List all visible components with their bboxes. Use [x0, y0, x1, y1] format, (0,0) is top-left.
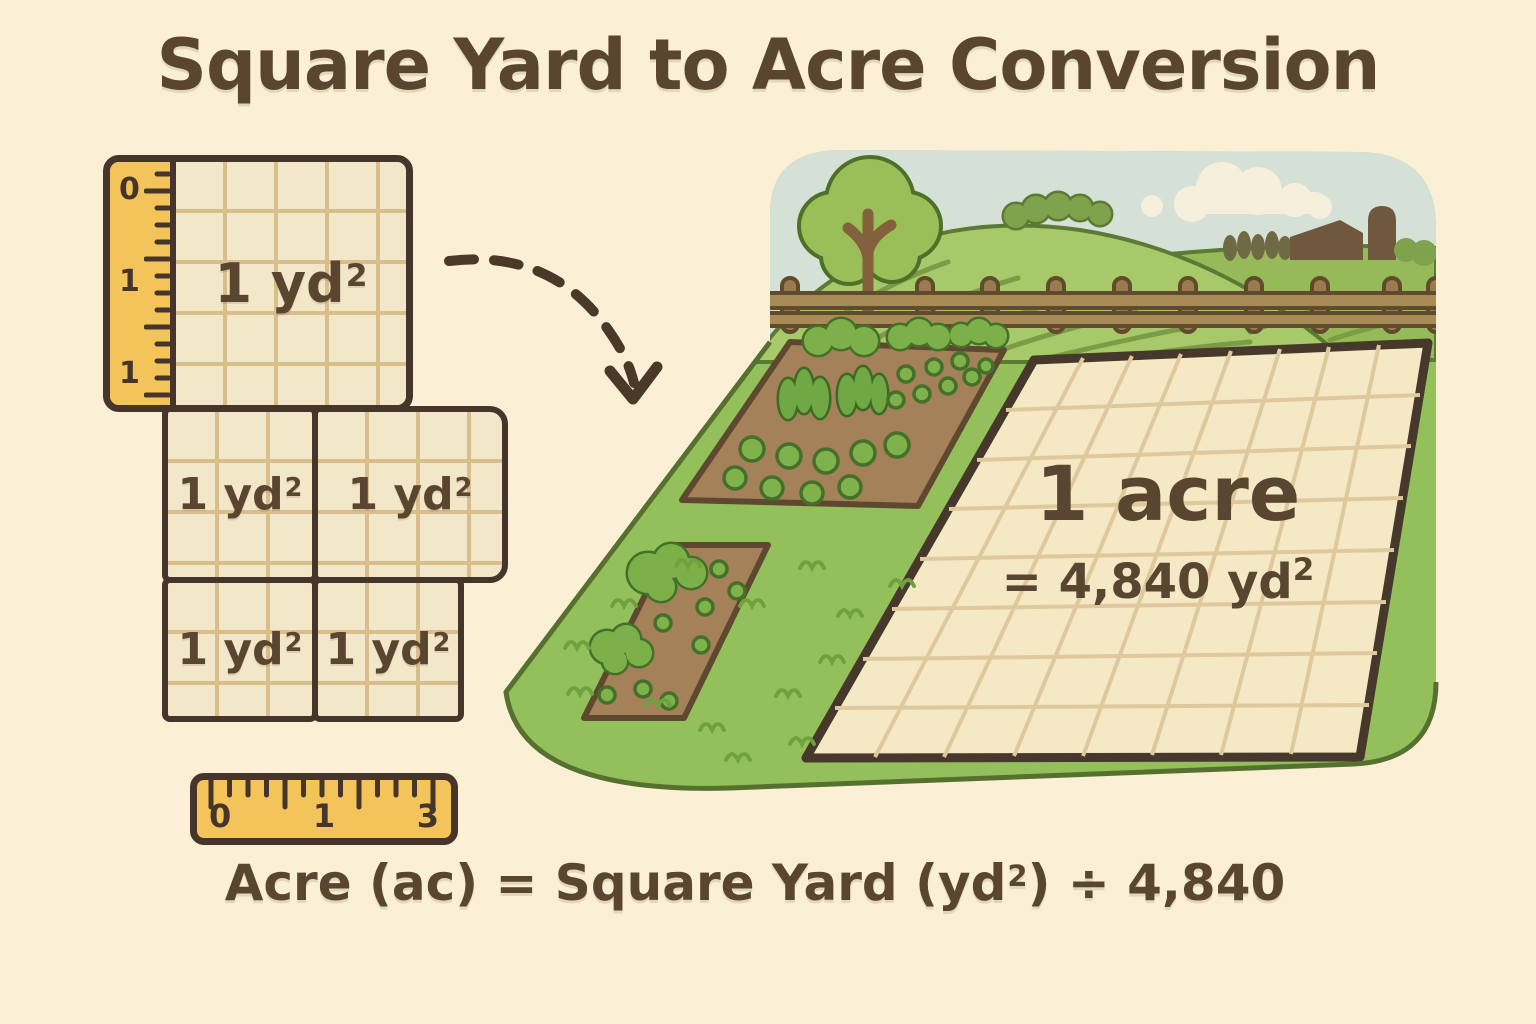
infographic-canvas: Square Yard to Acre Conversion: [0, 0, 1536, 1024]
unit-square-label: 1 yd2: [348, 469, 473, 520]
hruler-label-0: 0: [209, 797, 231, 835]
dashed-arrow-icon: [449, 259, 657, 399]
unit-square-grid: 1 yd2: [176, 162, 406, 405]
unit-square-label: 1 yd2: [326, 624, 451, 675]
unit-square-label: 1 yd2: [178, 469, 303, 520]
hruler-label-3: 3: [417, 797, 439, 835]
vruler-label-1: 1: [119, 264, 140, 299]
vruler-label-0: 0: [119, 172, 140, 207]
unit-square-label: 1 yd2: [178, 624, 303, 675]
horizontal-ruler-icon: 0 1 3: [190, 773, 458, 845]
unit-square-large: 0 1 1: [103, 155, 413, 412]
acre-equation: = 4,840 yd2: [1002, 552, 1315, 610]
unit-square-d: 1 yd2: [312, 577, 464, 722]
conversion-formula: Acre (ac) = Square Yard (yd2) ÷ 4,840: [0, 854, 1510, 912]
hruler-label-1: 1: [313, 797, 335, 835]
unit-square-a: 1 yd2: [162, 406, 318, 583]
vruler-ticks: [144, 166, 170, 402]
unit-square-label: 1 yd2: [214, 252, 367, 315]
vertical-ruler-icon: 0 1 1: [110, 162, 176, 405]
unit-square-b: 1 yd2: [312, 406, 508, 583]
vruler-label-2: 1: [119, 356, 140, 391]
acre-label: 1 acre: [1036, 449, 1301, 538]
unit-square-c: 1 yd2: [162, 577, 318, 722]
